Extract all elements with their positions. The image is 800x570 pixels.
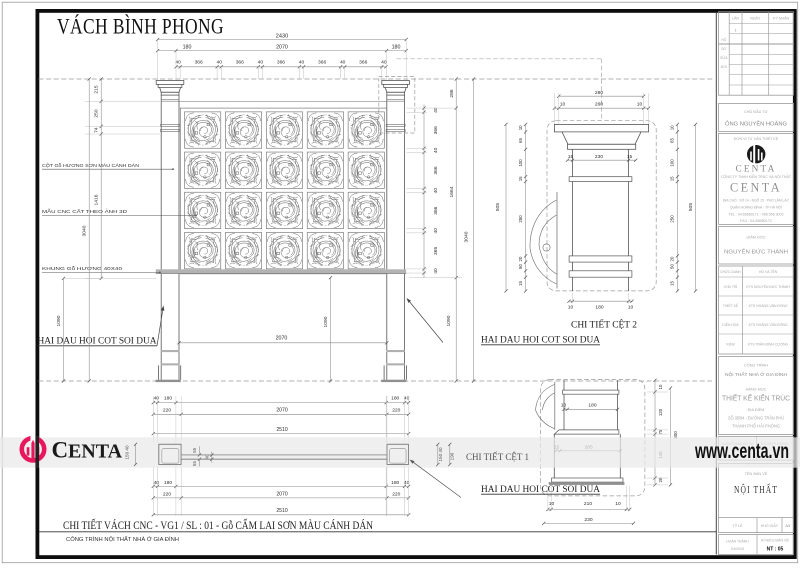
svg-text:GIÁM ĐỐC: GIÁM ĐỐC — [746, 235, 765, 240]
svg-text:SƠ: SƠ — [721, 47, 726, 51]
svg-text:150 40: 150 40 — [438, 447, 443, 461]
svg-text:180: 180 — [391, 480, 399, 486]
svg-text:40: 40 — [433, 228, 439, 234]
svg-text:ĐƠN VỊ TƯ VẤN THIẾT KẾ: ĐƠN VỊ TƯ VẤN THIẾT KẾ — [734, 136, 779, 141]
svg-text:250: 250 — [670, 215, 675, 223]
svg-text:366: 366 — [433, 126, 439, 134]
svg-text:10: 10 — [568, 305, 574, 311]
svg-text:CỘT Gỗ HƯƠNG SƠN MÀU CÁNH DÁN: CỘT Gỗ HƯƠNG SƠN MÀU CÁNH DÁN — [42, 162, 139, 168]
svg-text:2070: 2070 — [276, 45, 288, 51]
svg-text:HAI DAU HOI COT SOI DUA: HAI DAU HOI COT SOI DUA — [481, 484, 600, 494]
svg-text:3040: 3040 — [82, 225, 88, 236]
svg-text:CHI TIẾT CỆT 2: CHI TIẾT CỆT 2 — [571, 320, 637, 330]
svg-text:CENTA: CENTA — [730, 181, 782, 195]
svg-text:505: 505 — [688, 203, 694, 211]
svg-text:04/2015: 04/2015 — [731, 547, 744, 551]
svg-text:220: 220 — [163, 408, 171, 414]
svg-text:CHỦ ĐẦU TƯ: CHỦ ĐẦU TƯ — [744, 109, 769, 114]
svg-text:180: 180 — [588, 402, 596, 408]
svg-text:20: 20 — [670, 256, 675, 261]
svg-text:2070: 2070 — [276, 408, 287, 414]
svg-text:CHI TIẾT VÁCH CNC - VG1 / SL :: CHI TIẾT VÁCH CNC - VG1 / SL : 01 - Gỗ C… — [63, 519, 373, 532]
svg-text:55: 55 — [192, 461, 197, 467]
svg-text:15: 15 — [518, 281, 523, 286]
svg-text:65: 65 — [518, 138, 523, 143]
svg-text:HẠNG MỤC: HẠNG MỤC — [746, 388, 767, 392]
svg-text:CHỦ TRÌ: CHỦ TRÌ — [724, 284, 738, 289]
svg-text:HỐ VÀ TÊN: HỐ VÀ TÊN — [759, 269, 778, 274]
svg-text:2070: 2070 — [276, 491, 287, 497]
svg-text:20: 20 — [518, 256, 523, 261]
svg-text:15: 15 — [670, 176, 675, 181]
svg-text:KHỔ GIẤY: KHỔ GIẤY — [761, 523, 779, 528]
svg-text:2510: 2510 — [276, 427, 287, 433]
svg-text:220: 220 — [392, 491, 400, 497]
svg-text:SỐ 35/94 - ĐƯỜNG TRẦN PHÚ: SỐ 35/94 - ĐƯỜNG TRẦN PHÚ — [728, 416, 784, 421]
svg-text:2070: 2070 — [276, 336, 288, 342]
svg-text:TÊN BẢN VẺ: TÊN BẢN VẺ — [745, 471, 768, 476]
svg-text:NGÀY: NGÀY — [750, 17, 761, 21]
svg-text:280: 280 — [595, 90, 603, 96]
svg-text:KTS TRẦN ĐÌNH CƯỜNG: KTS TRẦN ĐÌNH CƯỜNG — [748, 342, 789, 347]
svg-text:CHỨC DANH: CHỨC DANH — [720, 269, 741, 274]
svg-text:180: 180 — [595, 305, 603, 311]
svg-text:366: 366 — [433, 206, 439, 214]
svg-text:10: 10 — [670, 125, 675, 130]
svg-text:10: 10 — [637, 102, 643, 108]
svg-text:366: 366 — [236, 59, 244, 65]
svg-text:CÔNG TY TNHH KIẾN TRÚC VÀ NỘI: CÔNG TY TNHH KIẾN TRÚC VÀ NỘI THẤT — [721, 174, 791, 179]
svg-text:1416: 1416 — [93, 194, 99, 205]
svg-text:366: 366 — [318, 59, 326, 65]
svg-text:KTS NGUYỄN ĐỨC THÀNH: KTS NGUYỄN ĐỨC THÀNH — [746, 284, 790, 289]
svg-text:215: 215 — [93, 85, 99, 93]
svg-text:ÔNG NGUYỄN HOÀNG: ÔNG NGUYỄN HOÀNG — [725, 121, 787, 128]
svg-text:HAI DAU HOI COT SOI DUA: HAI DAU HOI COT SOI DUA — [38, 336, 157, 346]
svg-text:KÍ HIỆU BẢN VẺ: KÍ HIỆU BẢN VẺ — [761, 538, 789, 543]
svg-text:1090: 1090 — [56, 315, 62, 326]
svg-text:MẪU CNC CẮT THEO ẢNH 3D: MẪU CNC CẮT THEO ẢNH 3D — [42, 207, 128, 214]
svg-text:NGUYỄN ĐỨC THÀNH: NGUYỄN ĐỨC THÀNH — [724, 249, 788, 256]
svg-text:2430: 2430 — [276, 34, 288, 40]
svg-text:NỘI THẤT: NỘI THẤT — [734, 483, 778, 496]
svg-text:40: 40 — [433, 147, 439, 153]
svg-text:3040: 3040 — [464, 231, 470, 242]
svg-text:1: 1 — [734, 29, 736, 33]
svg-text:150 40: 150 40 — [124, 445, 129, 459]
svg-text:10: 10 — [658, 384, 663, 389]
svg-text:180: 180 — [391, 396, 399, 402]
svg-text:CÔNG TRÌNH: CÔNG TRÌNH — [744, 363, 768, 368]
svg-text:74: 74 — [93, 127, 99, 133]
svg-text:www.centa.vn: www.centa.vn — [694, 439, 789, 463]
svg-text:220: 220 — [163, 491, 171, 497]
svg-text:FAX : 04.66680171: FAX : 04.66680171 — [740, 219, 772, 223]
svg-text:CHI TIẾT CỆT 1: CHI TIẾT CỆT 1 — [466, 452, 529, 462]
svg-text:ĐỊA ĐIỂM: ĐỊA ĐIỂM — [748, 407, 765, 412]
svg-text:366: 366 — [277, 59, 285, 65]
svg-text:A3: A3 — [785, 524, 790, 528]
svg-text:THIẾT KẾ: THIẾT KẾ — [723, 303, 739, 308]
svg-text:50: 50 — [518, 264, 523, 269]
svg-text:1090: 1090 — [323, 316, 329, 327]
svg-text:KHUNG Gỗ HƯƠNG 40X40: KHUNG Gỗ HƯƠNG 40X40 — [42, 265, 123, 271]
svg-text:KÝ NHẬN: KÝ NHẬN — [773, 17, 789, 21]
svg-text:40: 40 — [216, 59, 222, 65]
svg-text:100: 100 — [670, 159, 675, 167]
svg-text:230: 230 — [584, 517, 592, 523]
svg-text:TỶ LỆ: TỶ LỆ — [733, 523, 744, 528]
svg-text:365: 365 — [433, 247, 439, 255]
svg-text:55: 55 — [192, 447, 197, 453]
svg-text:40: 40 — [381, 59, 387, 65]
svg-text:SỬA: SỬA — [720, 55, 728, 60]
svg-text:NT : 05: NT : 05 — [767, 547, 784, 553]
svg-text:KIỂM: KIỂM — [726, 342, 734, 347]
svg-text:65: 65 — [670, 138, 675, 143]
svg-text:ĐỊA CHỐ : SỐ 14 - NGÕ 15 - PHỐ: ĐỊA CHỐ : SỐ 14 - NGÕ 15 - PHỐ LÃM LẠC — [723, 198, 790, 203]
svg-text:50: 50 — [670, 264, 675, 269]
svg-text:LẦN: LẦN — [732, 17, 739, 21]
svg-text:VÁCH BÌNH PHONG: VÁCH BÌNH PHONG — [57, 14, 224, 39]
svg-text:505: 505 — [495, 203, 501, 211]
svg-text:THÀNH PHỐ HẢI PHÒNG: THÀNH PHỐ HẢI PHÒNG — [732, 424, 780, 429]
svg-text:2510: 2510 — [276, 508, 287, 514]
svg-text:366: 366 — [359, 59, 367, 65]
svg-text:KTS HOÀNG VĂN ĐÔNG: KTS HOÀNG VĂN ĐÔNG — [749, 322, 788, 327]
svg-text:180: 180 — [392, 45, 401, 51]
svg-text:40: 40 — [299, 59, 305, 65]
svg-text:190: 190 — [450, 452, 455, 460]
svg-text:210: 210 — [584, 501, 592, 507]
svg-text:180: 180 — [164, 480, 172, 486]
svg-text:366: 366 — [195, 59, 203, 65]
svg-text:10: 10 — [560, 102, 566, 108]
svg-text:C: C — [52, 438, 69, 463]
svg-text:1090: 1090 — [446, 315, 452, 326]
svg-text:260: 260 — [595, 102, 603, 108]
svg-text:40: 40 — [154, 396, 160, 402]
svg-text:40: 40 — [433, 188, 439, 194]
svg-text:180: 180 — [164, 396, 172, 402]
svg-text:40: 40 — [340, 59, 346, 65]
svg-text:HAI DAU HOI COT SOI DUA: HAI DAU HOI COT SOI DUA — [481, 335, 600, 345]
svg-text:CENTA: CENTA — [736, 165, 777, 175]
svg-text:40: 40 — [433, 268, 439, 274]
svg-text:10: 10 — [549, 501, 555, 507]
svg-text:10: 10 — [628, 305, 634, 311]
svg-text:220: 220 — [392, 408, 400, 414]
svg-text:286: 286 — [449, 89, 455, 97]
svg-text:10: 10 — [615, 501, 621, 507]
svg-text:15: 15 — [518, 176, 523, 181]
svg-text:40: 40 — [258, 59, 264, 65]
svg-text:TEL : 04.66680171 - 096 558 30: TEL : 04.66680171 - 096 558 3003 — [729, 213, 784, 217]
svg-text:10: 10 — [518, 125, 523, 130]
svg-text:CÔNG TRÌNH NỘI THẤT NHÀ Ở GIA: CÔNG TRÌNH NỘI THẤT NHÀ Ở GIA ĐÌNH — [66, 536, 179, 543]
svg-text:HỒ: HỒ — [721, 37, 726, 42]
svg-text:250: 250 — [93, 109, 99, 117]
svg-text:15: 15 — [670, 281, 675, 286]
svg-text:NỘI THẤT NHÀ Ở GIA ĐÌNH: NỘI THẤT NHÀ Ở GIA ĐÌNH — [725, 371, 787, 377]
svg-text:366: 366 — [433, 166, 439, 174]
svg-text:HOÀN THÀNH: HOÀN THÀNH — [726, 540, 749, 544]
svg-text:KTS HOÀNG VĂN ĐÔNG: KTS HOÀNG VĂN ĐÔNG — [749, 303, 788, 308]
svg-text:DIỄN HỌA: DIỄN HỌA — [722, 322, 739, 327]
svg-text:ĐỔI: ĐỔI — [721, 64, 727, 69]
svg-text:ENTA: ENTA — [68, 441, 123, 463]
svg-text:10: 10 — [561, 402, 567, 408]
svg-text:QUẬN HOÀNG ĐÌNH - TP HÀ NỘI: QUẬN HOÀNG ĐÌNH - TP HÀ NỘI — [730, 205, 782, 210]
svg-text:180: 180 — [183, 45, 192, 51]
svg-text:250: 250 — [518, 215, 523, 223]
svg-text:230: 230 — [595, 154, 603, 160]
svg-text:100: 100 — [518, 159, 523, 167]
svg-text:120: 120 — [658, 408, 663, 416]
svg-text:1664: 1664 — [449, 186, 455, 197]
